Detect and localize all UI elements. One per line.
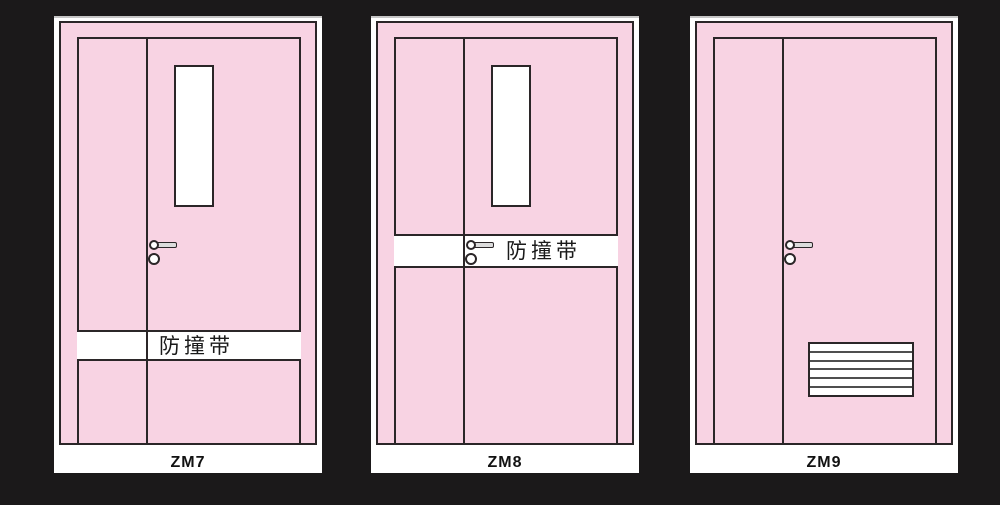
louver-slat [810, 379, 912, 388]
door-code-label: ZM8 [371, 454, 639, 472]
door-meeting-stile [146, 37, 148, 445]
louver-slat [810, 362, 912, 371]
anti-collision-band: 防撞带 [394, 234, 618, 268]
louver-slat [810, 344, 912, 353]
door-code-label: ZM7 [54, 454, 322, 472]
louver-slat [810, 370, 912, 379]
louver-slat [810, 388, 912, 395]
door-drawings-canvas: 防撞带 ZM7 防撞带 ZM8 [0, 0, 1000, 505]
door-meeting-stile [782, 37, 784, 445]
band-label: 防撞带 [506, 235, 581, 265]
band-label: 防撞带 [159, 329, 234, 359]
vent-louver [808, 342, 914, 397]
anti-collision-band: 防撞带 [77, 330, 301, 361]
handle-cylinder [148, 253, 160, 265]
vision-panel [491, 65, 531, 207]
handle-rose [466, 240, 476, 250]
door-drawing-zm9: ZM9 [690, 16, 958, 473]
handle-rose [785, 240, 795, 250]
handle-rose [149, 240, 159, 250]
handle-cylinder [784, 253, 796, 265]
door-code-label: ZM9 [690, 454, 958, 472]
louver-slat [810, 353, 912, 362]
vision-panel [174, 65, 214, 207]
door-drawing-zm8: 防撞带 ZM8 [371, 16, 639, 473]
door-drawing-zm7: 防撞带 ZM7 [54, 16, 322, 473]
handle-cylinder [465, 253, 477, 265]
door-meeting-stile [463, 37, 465, 445]
